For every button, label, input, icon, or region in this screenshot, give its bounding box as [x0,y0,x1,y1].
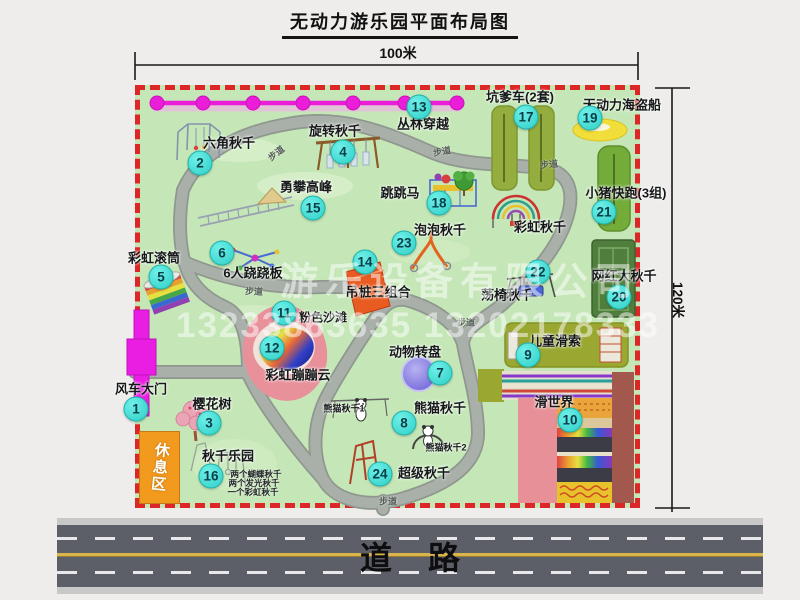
slide-world-icon [478,369,634,503]
rest-area-box: 休息区 [139,431,180,504]
rest-area-label: 休息区 [146,441,172,494]
animal-turntable-icon [402,357,436,391]
road-label: 道路 [360,533,496,579]
panda-swing-icons [331,398,444,449]
jungle-crossing-zipline [150,96,464,110]
piggy-run-icon [598,146,630,231]
cherry-tree-icon [176,401,212,441]
pit-car-icon [492,106,554,190]
park-plan-canvas: 休息区 风车大门1六角秋千2樱花树3旋转秋千4彩虹滚筒56人跷跷板6动物转盘7熊… [0,0,800,600]
rainbow-swing-icon [493,196,539,228]
watermark-company: 游乐设备有限公司 [280,251,640,306]
tree-icon [453,171,475,196]
super-swing-icon [350,441,378,484]
page-title: 无动力游乐园平面布局图 [282,8,518,39]
pirate-ship-icon [573,119,627,141]
six-person-seesaw-icon [231,248,280,271]
top-dimension-label: 100米 [379,43,416,63]
watermark-phone: 13233863635 13202178333 [176,306,660,346]
road: 道路 [57,518,763,594]
right-dimension-label: 120米 [669,282,689,318]
windmill-gate-icon [127,310,156,416]
rotating-swing-icon [316,138,380,170]
